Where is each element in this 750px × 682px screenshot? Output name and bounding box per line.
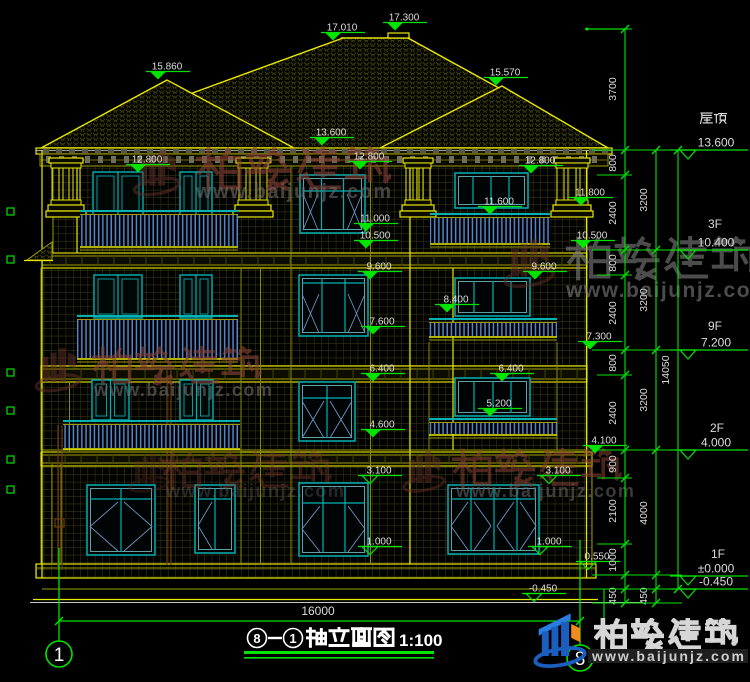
svg-text:15.860: 15.860 xyxy=(152,62,183,73)
svg-text:3.100: 3.100 xyxy=(366,466,391,477)
svg-text:1: 1 xyxy=(289,631,296,646)
svg-text:1:100: 1:100 xyxy=(399,631,442,650)
svg-text:±0.000: ±0.000 xyxy=(698,562,735,576)
svg-text:9F: 9F xyxy=(708,319,722,333)
svg-text:3.100: 3.100 xyxy=(545,466,570,477)
svg-text:www.baijunjz.com: www.baijunjz.com xyxy=(455,481,635,501)
svg-text:1.000: 1.000 xyxy=(366,537,391,548)
svg-text:www.baijunjz.com: www.baijunjz.com xyxy=(93,380,273,400)
svg-text:2100: 2100 xyxy=(607,499,619,523)
svg-text:15.570: 15.570 xyxy=(490,68,521,79)
svg-text:7.600: 7.600 xyxy=(369,317,394,328)
svg-text:4.000: 4.000 xyxy=(701,436,731,450)
svg-text:6.400: 6.400 xyxy=(498,364,523,375)
svg-text:4000: 4000 xyxy=(638,501,650,525)
svg-text:11.800: 11.800 xyxy=(575,188,605,199)
svg-text:900: 900 xyxy=(607,455,619,473)
svg-text:8.400: 8.400 xyxy=(443,295,468,306)
svg-text:3700: 3700 xyxy=(607,77,619,101)
svg-text:800: 800 xyxy=(607,154,619,172)
svg-text:13.600: 13.600 xyxy=(316,128,347,139)
svg-text:16000: 16000 xyxy=(301,604,335,618)
svg-text:800: 800 xyxy=(607,254,619,272)
svg-text:10.500: 10.500 xyxy=(577,231,608,242)
svg-text:3200: 3200 xyxy=(638,388,650,412)
svg-text:1.000: 1.000 xyxy=(536,537,561,548)
svg-text:3200: 3200 xyxy=(638,288,650,312)
svg-text:10.500: 10.500 xyxy=(360,231,391,242)
svg-text:7.200: 7.200 xyxy=(701,336,731,350)
svg-text:11.600: 11.600 xyxy=(484,197,514,208)
svg-text:8: 8 xyxy=(253,631,260,646)
svg-text:3200: 3200 xyxy=(638,188,650,212)
svg-text:www.baijunjz.com: www.baijunjz.com xyxy=(565,279,750,302)
svg-text:6.400: 6.400 xyxy=(369,364,394,375)
svg-text:9.600: 9.600 xyxy=(366,262,391,273)
svg-text:9.600: 9.600 xyxy=(531,262,556,273)
svg-text:7.300: 7.300 xyxy=(586,332,611,343)
svg-text:-0.450: -0.450 xyxy=(529,584,558,595)
svg-text:3F: 3F xyxy=(708,217,722,231)
svg-text:14050: 14050 xyxy=(660,355,672,384)
svg-text:2400: 2400 xyxy=(607,201,619,225)
svg-text:17.010: 17.010 xyxy=(327,23,358,34)
svg-text:-0.450: -0.450 xyxy=(699,575,733,589)
svg-text:17.300: 17.300 xyxy=(389,13,420,24)
svg-text:12.800: 12.800 xyxy=(354,152,385,163)
svg-text:450: 450 xyxy=(607,587,619,605)
svg-text:2400: 2400 xyxy=(607,301,619,325)
svg-text:11.000: 11.000 xyxy=(360,214,390,225)
svg-text:4.100: 4.100 xyxy=(591,436,616,447)
svg-text:www.baijunjz.com: www.baijunjz.com xyxy=(165,481,345,501)
svg-text:12.800: 12.800 xyxy=(525,156,556,167)
svg-text:1F: 1F xyxy=(711,547,725,561)
svg-text:12.800: 12.800 xyxy=(132,155,163,166)
svg-text:10.400: 10.400 xyxy=(698,236,735,250)
svg-text:5.200: 5.200 xyxy=(486,399,511,410)
svg-text:800: 800 xyxy=(607,354,619,372)
svg-text:1000: 1000 xyxy=(607,548,619,572)
svg-text:www.baijunjz.com: www.baijunjz.com xyxy=(195,181,393,203)
svg-text:1: 1 xyxy=(54,645,65,666)
svg-text:2F: 2F xyxy=(710,421,724,435)
svg-text:2400: 2400 xyxy=(607,401,619,425)
svg-text:4.600: 4.600 xyxy=(369,420,394,431)
svg-text:450: 450 xyxy=(638,587,650,605)
svg-text:13.600: 13.600 xyxy=(698,136,735,150)
